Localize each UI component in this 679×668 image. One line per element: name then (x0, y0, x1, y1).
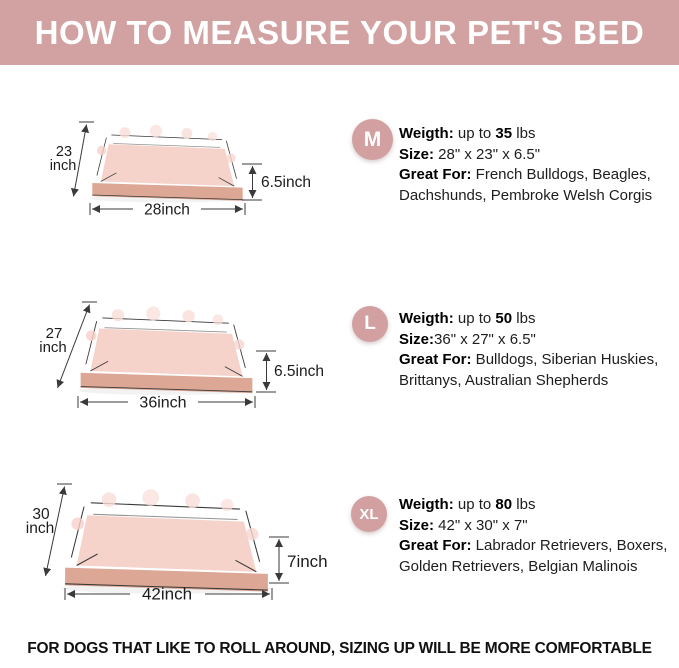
dim-width-label-xl: 42inch (142, 585, 192, 604)
great-for-value: Dachshunds, Pembroke Welsh Corgis (399, 187, 652, 204)
footer-banner: FOR DOGS THAT LIKE TO ROLL AROUND, SIZIN… (0, 640, 679, 658)
bed-illustration-m (90, 125, 245, 203)
weight-pre: up to (454, 310, 496, 327)
weight-line: Weigth: up to 35 lbs (399, 124, 652, 145)
dim-width-label-l: 36inch (139, 395, 186, 412)
great-for-value: Labrador Retrievers, Boxers, (472, 537, 668, 554)
dim-side-unit-xl: inch (26, 520, 54, 537)
weight-label: Weigth: (399, 125, 454, 142)
size-value: 28" x 23" x 6.5" (434, 146, 540, 163)
great-for-line-1: Great For: Labrador Retrievers, Boxers, (399, 536, 667, 557)
weight-label: Weigth: (399, 310, 454, 327)
size-info-l: Weigth: up to 50 lbs Size:36" x 27" x 6.… (399, 309, 658, 391)
great-for-line-1: Great For: French Bulldogs, Beagles, (399, 165, 652, 186)
pet-bed-size-infographic: HOW TO MEASURE YOUR PET'S BED (0, 0, 679, 668)
dim-height-label-xl: 7inch (287, 552, 328, 571)
size-label: Size: (399, 517, 434, 534)
bed-illustration-l (78, 306, 255, 395)
size-badge-l: L (352, 306, 388, 342)
weight-line: Weigth: up to 80 lbs (399, 495, 667, 516)
great-for-line-2: Dachshunds, Pembroke Welsh Corgis (399, 186, 652, 207)
dim-width-label-m: 28inch (144, 202, 190, 219)
footer-note: FOR DOGS THAT LIKE TO ROLL AROUND, SIZIN… (0, 640, 679, 658)
size-line: Size: 42" x 30" x 7" (399, 516, 667, 537)
weight-unit: lbs (512, 496, 535, 513)
weight-label: Weigth: (399, 496, 454, 513)
dim-side-unit-m: inch (50, 158, 77, 174)
great-for-value: Golden Retrievers, Belgian Malinois (399, 558, 637, 575)
great-for-line-2: Golden Retrievers, Belgian Malinois (399, 557, 667, 578)
great-for-label: Great For: (399, 166, 472, 183)
dim-height-label-l: 6.5inch (274, 363, 324, 380)
dim-side-unit-l: inch (39, 339, 67, 356)
great-for-value: French Bulldogs, Beagles, (472, 166, 651, 183)
size-label: Size: (399, 331, 434, 348)
size-info-xl: Weigth: up to 80 lbs Size: 42" x 30" x 7… (399, 495, 667, 577)
weight-pre: up to (454, 496, 496, 513)
weight-value: 50 (495, 310, 512, 327)
size-line: Size:36" x 27" x 6.5" (399, 330, 658, 351)
size-info-m: Weigth: up to 35 lbs Size: 28" x 23" x 6… (399, 124, 652, 206)
size-value: 42" x 30" x 7" (434, 517, 528, 534)
weight-value: 80 (495, 496, 512, 513)
bed-illustration-xl (62, 489, 271, 593)
great-for-label: Great For: (399, 537, 472, 554)
great-for-label: Great For: (399, 351, 472, 368)
great-for-value: Bulldogs, Siberian Huskies, (472, 351, 659, 368)
weight-line: Weigth: up to 50 lbs (399, 309, 658, 330)
weight-unit: lbs (512, 125, 535, 142)
size-value: 36" x 27" x 6.5" (434, 331, 536, 348)
weight-unit: lbs (512, 310, 535, 327)
weight-pre: up to (454, 125, 496, 142)
dim-height-label-m: 6.5inch (261, 174, 311, 191)
great-for-line-1: Great For: Bulldogs, Siberian Huskies, (399, 350, 658, 371)
size-label: Size: (399, 146, 434, 163)
size-badge-xl: XL (351, 496, 387, 532)
size-line: Size: 28" x 23" x 6.5" (399, 145, 652, 166)
weight-value: 35 (495, 125, 512, 142)
great-for-line-2: Brittanys, Australian Shepherds (399, 371, 658, 392)
size-badge-m: M (352, 119, 393, 160)
great-for-value: Brittanys, Australian Shepherds (399, 372, 608, 389)
